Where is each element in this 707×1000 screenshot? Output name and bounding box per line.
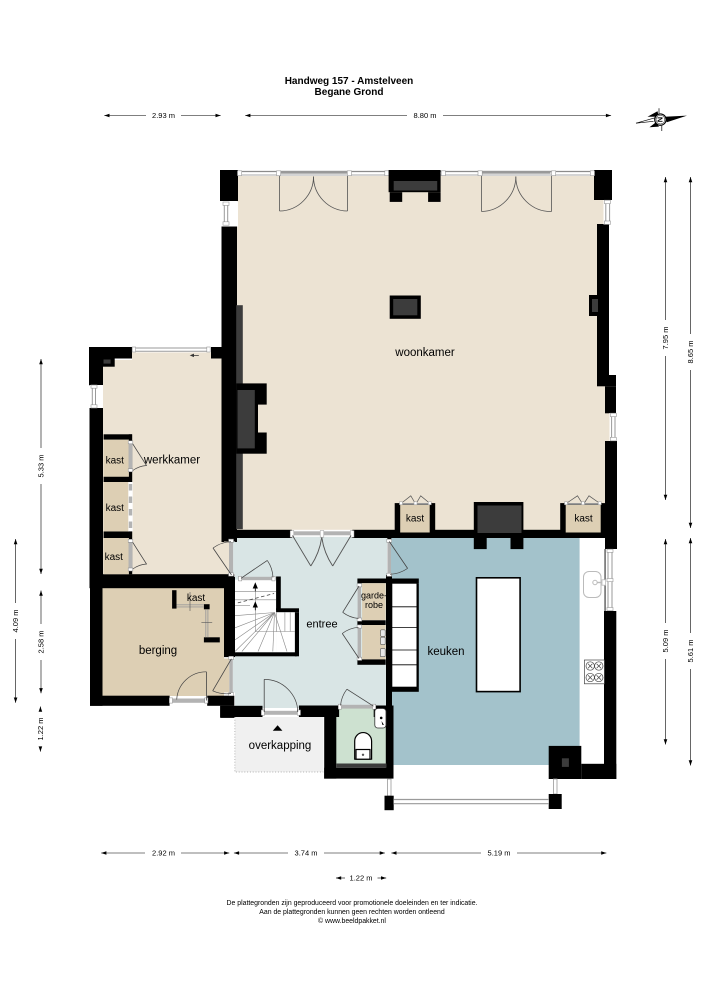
svg-text:2.92 m: 2.92 m	[152, 849, 175, 858]
svg-text:garde-: garde-	[361, 591, 387, 601]
svg-text:robe: robe	[365, 600, 383, 610]
svg-text:© www.beeldpakket.nl: © www.beeldpakket.nl	[318, 917, 386, 925]
svg-text:keuken: keuken	[427, 646, 464, 658]
svg-text:kast: kast	[406, 514, 425, 525]
svg-text:entree: entree	[306, 619, 337, 631]
svg-text:berging: berging	[139, 645, 177, 657]
svg-text:5.19 m: 5.19 m	[488, 849, 511, 858]
svg-text:woonkamer: woonkamer	[394, 347, 455, 359]
svg-text:Handweg 157 - Amstelveen: Handweg 157 - Amstelveen	[285, 76, 414, 87]
svg-text:Begane Grond: Begane Grond	[315, 87, 384, 98]
svg-text:1.22 m: 1.22 m	[350, 874, 373, 883]
svg-text:N: N	[656, 117, 665, 122]
svg-text:kast: kast	[106, 456, 125, 467]
svg-text:7.95 m: 7.95 m	[661, 327, 670, 350]
svg-text:8.80 m: 8.80 m	[414, 111, 437, 120]
svg-text:kast: kast	[574, 514, 593, 525]
svg-text:3.74 m: 3.74 m	[295, 849, 318, 858]
svg-text:5.61 m: 5.61 m	[686, 640, 695, 663]
svg-text:De plattegronden zijn geproduc: De plattegronden zijn geproduceerd voor …	[227, 900, 478, 907]
svg-text:werkkamer: werkkamer	[143, 455, 200, 467]
svg-text:kast: kast	[105, 552, 124, 563]
svg-text:1.22 m: 1.22 m	[36, 718, 45, 741]
svg-text:Aan de plattegronden kunnen ge: Aan de plattegronden kunnen geen rechten…	[259, 909, 445, 916]
svg-text:2.58 m: 2.58 m	[37, 631, 46, 654]
svg-text:5.09 m: 5.09 m	[661, 630, 670, 653]
svg-text:2.93 m: 2.93 m	[152, 111, 175, 120]
svg-text:kast: kast	[106, 503, 125, 514]
svg-text:overkapping: overkapping	[249, 740, 312, 752]
svg-text:5.33 m: 5.33 m	[37, 455, 46, 478]
svg-text:4.09 m: 4.09 m	[11, 610, 20, 633]
svg-text:kast: kast	[187, 593, 206, 604]
svg-text:8.65 m: 8.65 m	[686, 341, 695, 364]
